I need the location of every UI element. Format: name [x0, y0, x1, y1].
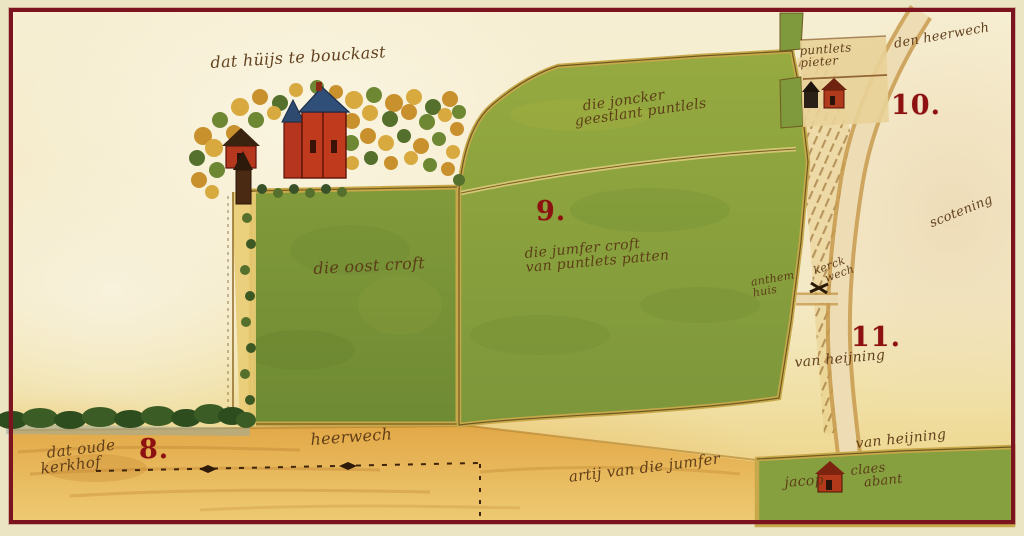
tree-icon	[257, 184, 267, 194]
tree-icon	[252, 89, 268, 105]
tree-icon	[432, 132, 446, 146]
marker-9: 9.	[536, 196, 566, 227]
tree-icon	[360, 128, 376, 144]
tree-icon	[404, 151, 418, 165]
left-croft-field	[245, 187, 458, 424]
tree-icon	[240, 265, 250, 275]
tree-icon	[240, 369, 250, 379]
label-claes-abant: claes abant	[850, 460, 903, 492]
tree-icon	[385, 94, 403, 112]
tree-icon	[446, 145, 460, 159]
tree-icon	[384, 156, 398, 170]
tree-icon	[413, 138, 429, 154]
left-lane	[228, 192, 256, 426]
tree-icon	[452, 105, 466, 119]
tree-icon	[364, 151, 378, 165]
tree-icon	[450, 122, 464, 136]
tree-icon	[378, 135, 394, 151]
tree-icon	[321, 184, 331, 194]
tree-icon	[345, 156, 359, 170]
tree-icon	[345, 91, 363, 109]
tree-icon	[231, 98, 249, 116]
tree-icon	[241, 317, 251, 327]
tree-icon	[205, 139, 223, 157]
tree-icon	[245, 395, 255, 405]
tree-icon	[362, 105, 378, 121]
tree-icon	[289, 83, 303, 97]
tree-icon	[366, 87, 382, 103]
marker-10: 10.	[891, 90, 941, 121]
tree-icon	[205, 185, 219, 199]
tree-icon	[242, 213, 252, 223]
tree-icon	[419, 114, 435, 130]
tree-icon	[189, 150, 205, 166]
tree-icon	[248, 112, 264, 128]
tree-icon	[406, 89, 422, 105]
tree-icon	[289, 184, 299, 194]
tree-icon	[246, 239, 256, 249]
tree-icon	[397, 129, 411, 143]
label-puntlets-pieter: puntlets pieter	[799, 41, 853, 69]
tree-icon	[273, 188, 283, 198]
tree-icon	[305, 188, 315, 198]
tree-icon	[423, 158, 437, 172]
tree-icon	[401, 104, 417, 120]
tree-icon	[441, 162, 455, 176]
tree-icon	[209, 162, 225, 178]
tree-icon	[438, 108, 452, 122]
tree-icon	[442, 91, 458, 107]
historical-map-scan: dat hüijs te bouckast die joncker geestl…	[0, 0, 1024, 536]
tree-icon	[453, 174, 465, 186]
tree-icon	[382, 111, 398, 127]
tree-icon	[246, 343, 256, 353]
label-jacop: jacop	[784, 473, 824, 490]
marker-8: 8.	[139, 434, 169, 465]
tree-icon	[267, 106, 281, 120]
tree-icon	[212, 112, 228, 128]
treeline	[0, 404, 256, 436]
marker-11: 11.	[851, 322, 901, 353]
tree-icon	[191, 172, 207, 188]
tree-icon	[337, 187, 347, 197]
tree-icon	[245, 291, 255, 301]
